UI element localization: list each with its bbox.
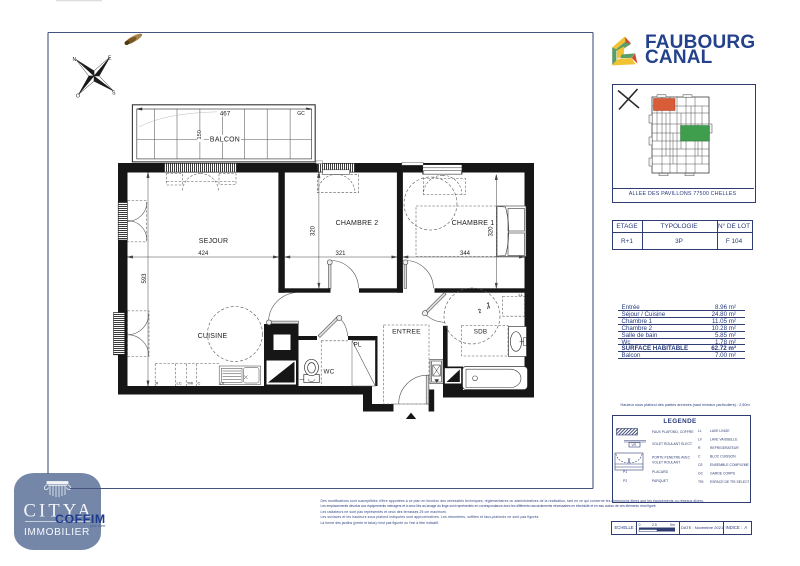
svg-text:SEJOUR: SEJOUR	[199, 238, 229, 245]
svg-text:320: 320	[311, 225, 317, 236]
svg-text:GC: GC	[698, 471, 704, 475]
svg-text:R: R	[698, 446, 701, 450]
svg-text:ENSEMBLE COMPLEMENT.: ENSEMBLE COMPLEMENT.	[710, 463, 749, 467]
svg-text:LL: LL	[519, 292, 524, 297]
svg-text:LAVE LINGE: LAVE LINGE	[710, 429, 730, 433]
svg-text:LAVE VAISSELLE: LAVE VAISSELLE	[710, 437, 738, 441]
svg-text:CE: CE	[698, 463, 703, 467]
svg-text:TRI: TRI	[698, 480, 704, 484]
svg-text:S: S	[112, 91, 116, 97]
svg-text:593: 593	[142, 273, 148, 284]
svg-text:SDB: SDB	[474, 329, 488, 336]
svg-text:424: 424	[198, 251, 209, 257]
svg-text:VOLET ROULANT: VOLET ROULANT	[652, 460, 680, 464]
svg-text:CUISINE: CUISINE	[198, 333, 228, 340]
svg-text:LV: LV	[220, 381, 225, 386]
svg-text:GC: GC	[297, 111, 305, 117]
svg-text:344: 344	[460, 251, 471, 257]
svg-text:C: C	[198, 381, 201, 386]
svg-text:FAUX PLAFOND, COFFRE: FAUX PLAFOND, COFFRE	[652, 430, 694, 434]
svg-text:IMMOBILIER: IMMOBILIER	[24, 527, 90, 538]
svg-text:PORTE FENETRE AVEC: PORTE FENETRE AVEC	[652, 455, 691, 459]
svg-text:321: 321	[335, 251, 346, 257]
svg-text:LL: LL	[698, 429, 702, 433]
svg-text:467: 467	[220, 111, 231, 118]
svg-text:E: E	[108, 56, 112, 62]
svg-text:CHAMBRE 1: CHAMBRE 1	[452, 220, 495, 227]
svg-text:ESPACE DE TRI SELECT.: ESPACE DE TRI SELECT.	[710, 480, 749, 484]
svg-text:VOLET ROULANT ELECT.: VOLET ROULANT ELECT.	[652, 442, 693, 446]
svg-text:N: N	[73, 57, 77, 63]
svg-text:LC: LC	[177, 381, 182, 386]
svg-text:O: O	[76, 94, 80, 100]
svg-text:WC: WC	[324, 368, 335, 375]
svg-text:R: R	[156, 381, 159, 386]
svg-text:PLACARD: PLACARD	[652, 470, 669, 474]
svg-text:PARQUET: PARQUET	[652, 479, 668, 483]
svg-text:BLOC CUISSON: BLOC CUISSON	[710, 454, 736, 458]
svg-text:C: C	[698, 454, 701, 458]
svg-text:P1: P1	[623, 470, 627, 474]
svg-text:GARDE CORPS: GARDE CORPS	[710, 471, 736, 475]
svg-text:320: 320	[489, 226, 495, 237]
svg-text:PL: PL	[353, 341, 361, 348]
svg-text:P2: P2	[623, 479, 627, 483]
svg-text:BALCON: BALCON	[210, 137, 240, 144]
svg-text:LV: LV	[698, 437, 703, 441]
svg-text:150: 150	[197, 130, 203, 139]
svg-text:ENTREE: ENTREE	[392, 329, 421, 336]
svg-text:TRI: TRI	[187, 381, 193, 386]
svg-text:VR: VR	[631, 443, 636, 447]
svg-text:REFRIGERATEUR: REFRIGERATEUR	[710, 446, 739, 450]
svg-text:CHAMBRE 2: CHAMBRE 2	[336, 220, 379, 227]
